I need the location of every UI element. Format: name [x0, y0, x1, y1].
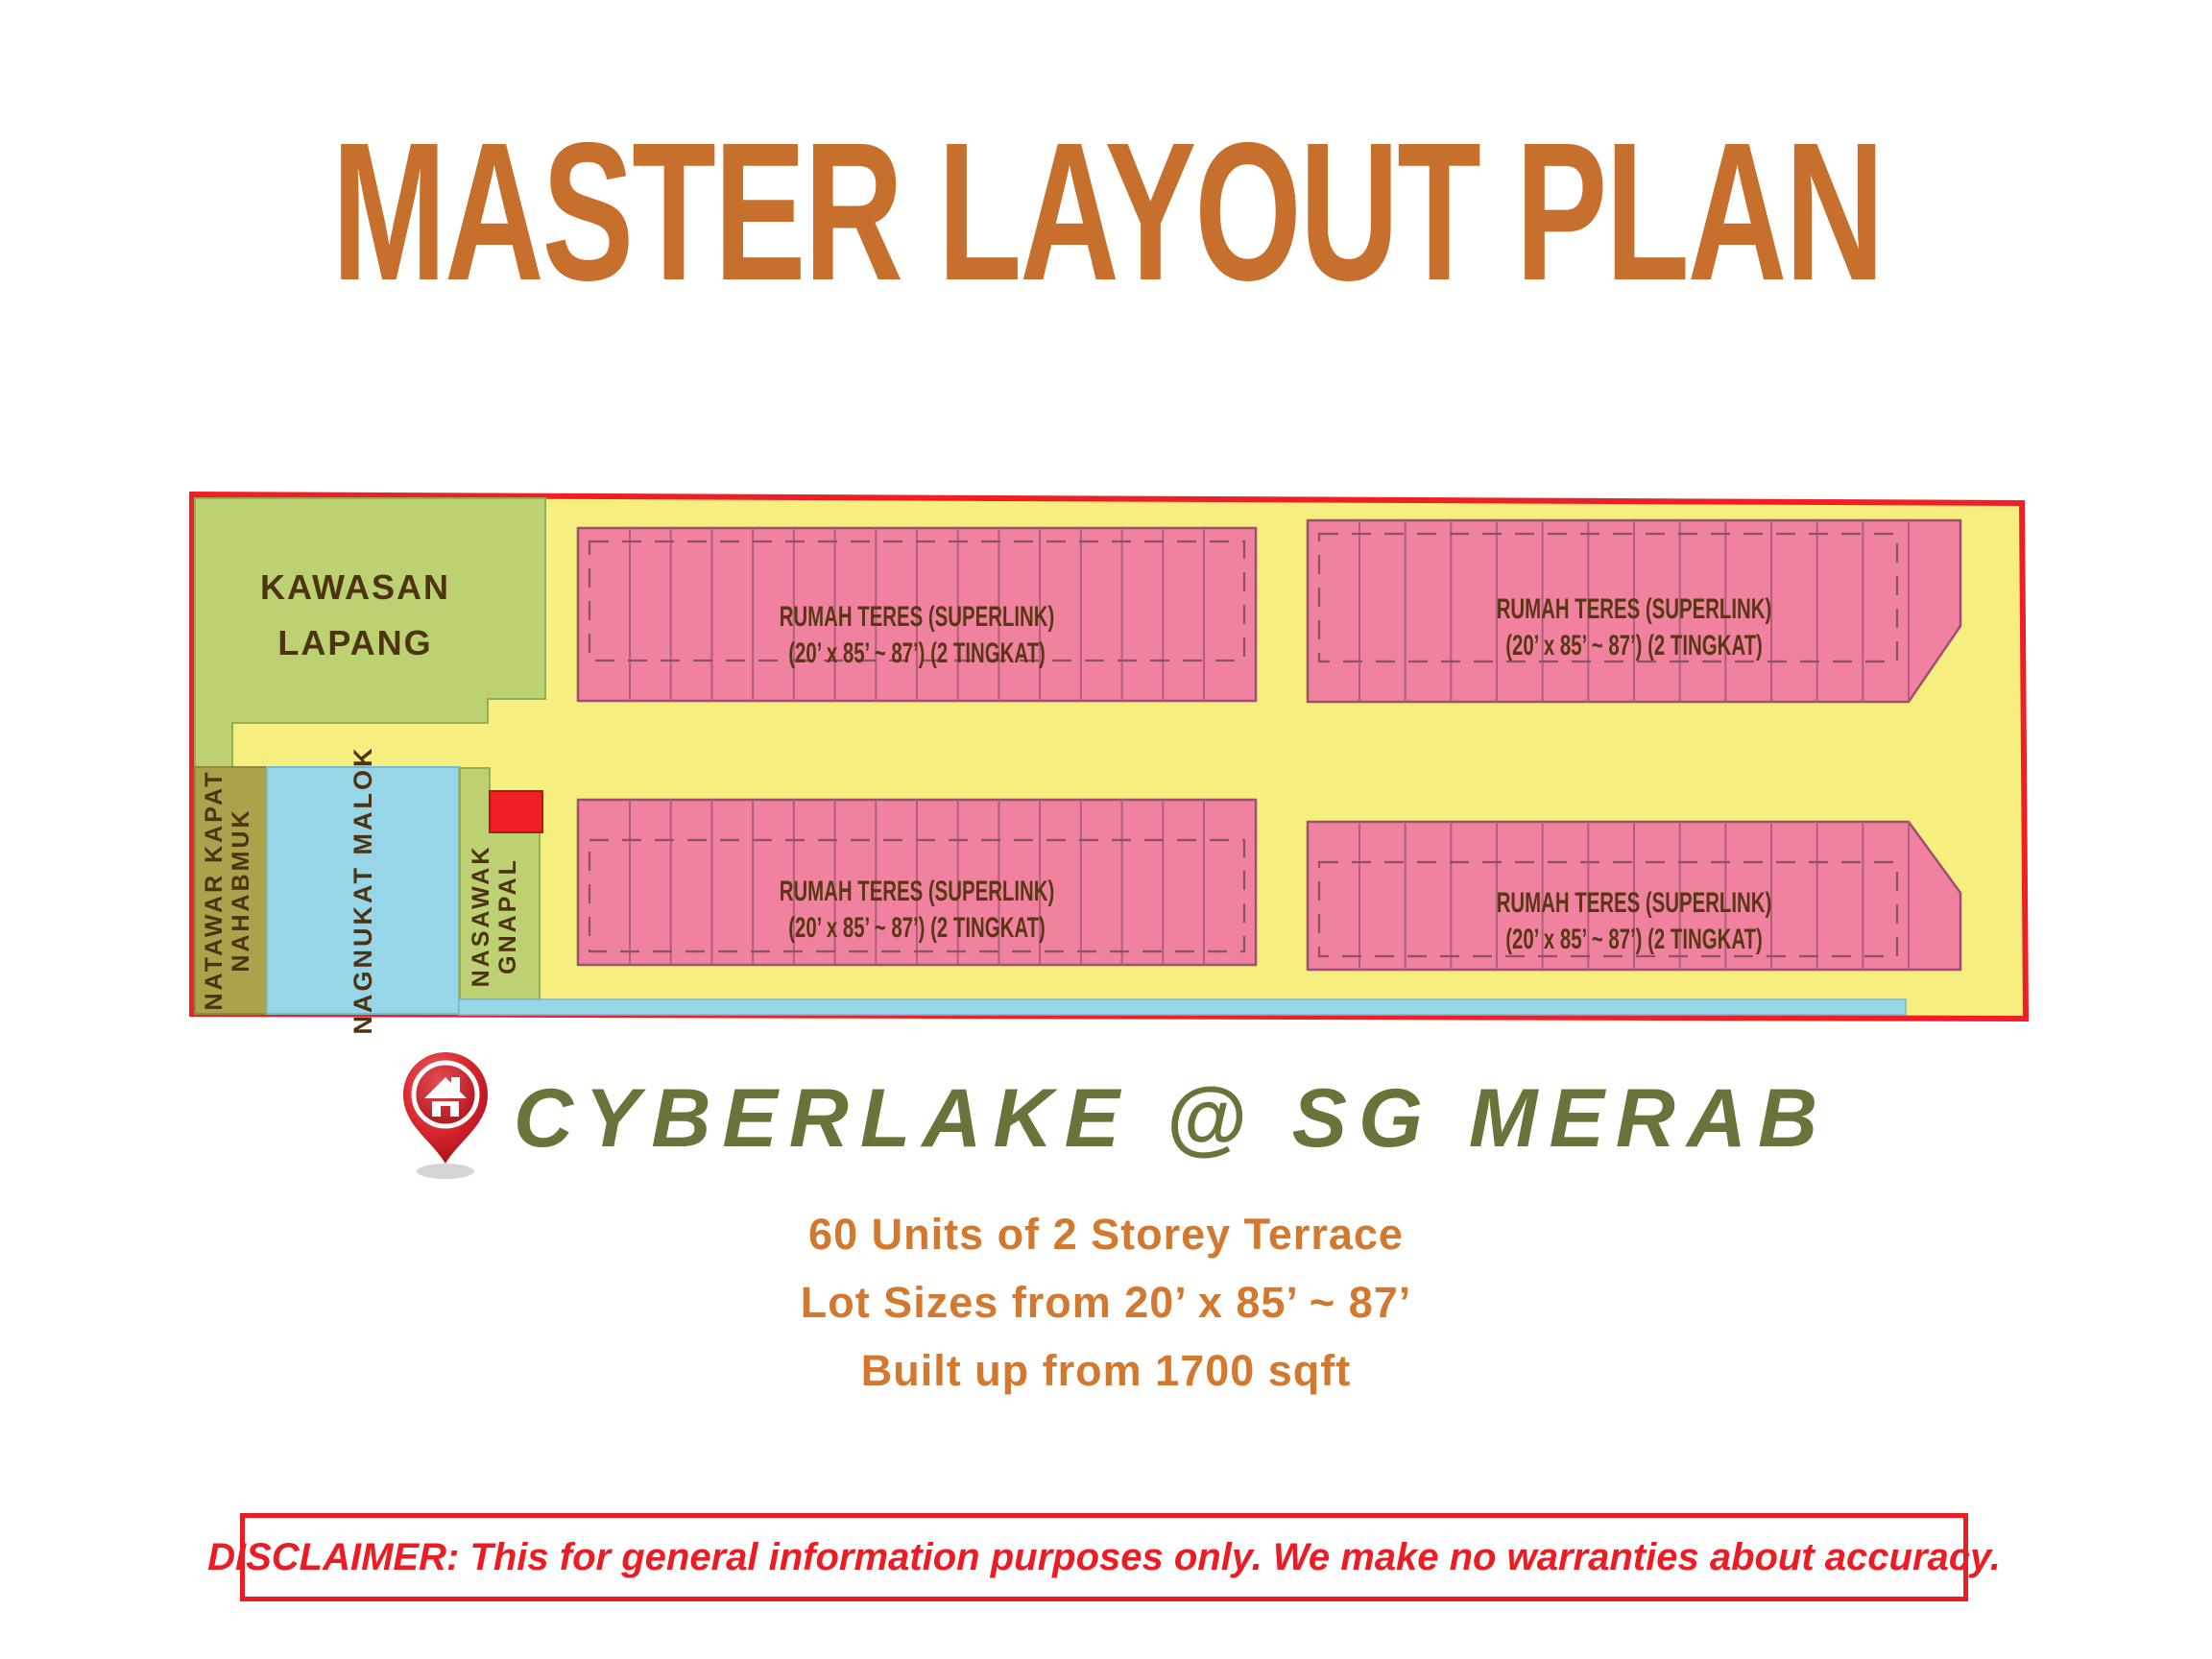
block-label: RUMAH TERES (SUPERLINK) [1497, 887, 1772, 919]
pin-shadow [417, 1164, 474, 1179]
detail-built-up: Built up from 1700 sqft [0, 1336, 2212, 1405]
open-space-strip-label-line2: GNAPAL [494, 857, 521, 974]
detail-lot-sizes: Lot Sizes from 20’ x 85’ ~ 87’ [0, 1268, 2212, 1336]
open-space-strip-label-line1: NASAWAK [468, 845, 494, 988]
block-label: RUMAH TERES (SUPERLINK) [780, 601, 1055, 633]
disclaimer-box: DISCLAIMER: This for general information… [240, 1513, 1968, 1601]
block-label: (20’ x 85’ ~ 87’) (2 TINGKAT) [1505, 630, 1763, 661]
detail-units: 60 Units of 2 Storey Terrace [0, 1200, 2212, 1268]
project-details: 60 Units of 2 Storey Terrace Lot Sizes f… [0, 1200, 2212, 1405]
housing-block-top-left: RUMAH TERES (SUPERLINK) (20’ x 85’ ~ 87’… [578, 528, 1256, 701]
open-space-main-label-line1: KAWASAN [260, 567, 450, 607]
housing-block-bottom-right: RUMAH TERES (SUPERLINK) (20’ x 85’ ~ 87’… [1308, 822, 1960, 970]
site-plan: RUMAH TERES (SUPERLINK) (20’ x 85’ ~ 87’… [0, 0, 2212, 1659]
disclaimer-text: DISCLAIMER: This for general information… [207, 1536, 2001, 1579]
block-label: (20’ x 85’ ~ 87’) (2 TINGKAT) [788, 637, 1046, 669]
open-space-main-label-line2: LAPANG [277, 623, 432, 662]
retention-pond-label: NAGNUKAT MALOK [349, 746, 377, 1035]
utility-marker-square [490, 791, 542, 832]
housing-block-bottom-left: RUMAH TERES (SUPERLINK) (20’ x 85’ ~ 87’… [578, 800, 1256, 965]
project-name: CYBERLAKE @ SG MERAB [480, 1077, 1863, 1160]
housing-block-top-right: RUMAH TERES (SUPERLINK) (20’ x 85’ ~ 87’… [1308, 520, 1960, 702]
block-label: RUMAH TERES (SUPERLINK) [780, 876, 1055, 907]
master-layout-plan-poster: { "page": { "title": "MASTER LAYOUT PLAN… [0, 0, 2212, 1659]
block-label: (20’ x 85’ ~ 87’) (2 TINGKAT) [1505, 924, 1763, 955]
drain-strip [459, 999, 1906, 1015]
block-label: (20’ x 85’ ~ 87’) (2 TINGKAT) [788, 912, 1046, 944]
block-label: RUMAH TERES (SUPERLINK) [1497, 593, 1772, 625]
sewage-label-line2: NAHABMUK [228, 807, 254, 972]
sewage-label-line1: NATAWAR KAPAT [201, 769, 228, 1010]
